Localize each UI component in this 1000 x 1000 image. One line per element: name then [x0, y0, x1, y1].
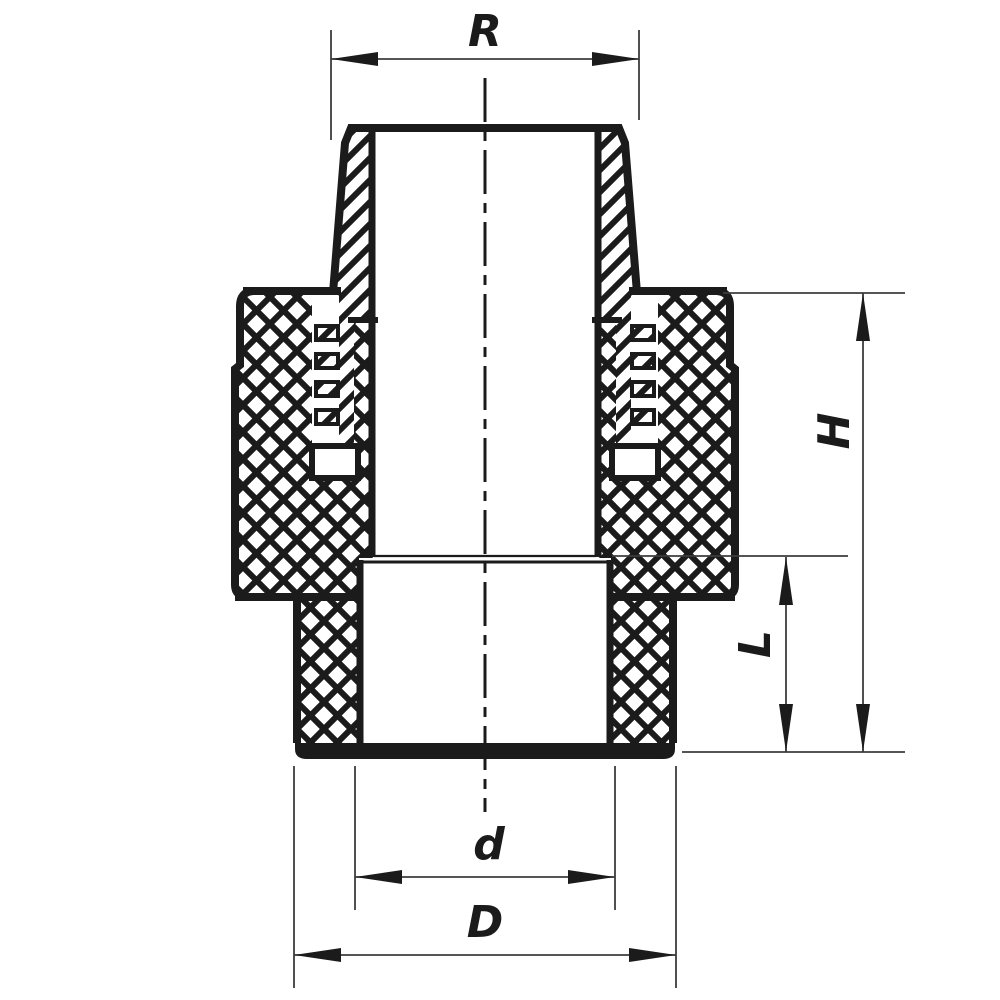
- socket-wall-left: [299, 478, 359, 744]
- arrowhead-bottom: [856, 704, 870, 752]
- union-fitting-section-drawing: R H L d D: [0, 0, 1000, 1000]
- arrowhead-left: [355, 870, 402, 884]
- socket-wall-right: [611, 478, 671, 744]
- arrowhead-top: [856, 293, 870, 341]
- dimension-label-R: R: [468, 6, 502, 57]
- thread-teeth-left: [316, 326, 338, 424]
- dimension-label-L: L: [730, 630, 781, 658]
- arrowhead-top: [779, 557, 793, 605]
- arrowhead-right: [629, 948, 676, 962]
- dimension-label-H: H: [809, 413, 860, 450]
- arrowhead-left: [294, 948, 341, 962]
- dimension-label-d: d: [473, 819, 505, 870]
- thread-teeth-right: [632, 326, 654, 424]
- seal-pocket-right: [612, 446, 658, 478]
- arrowhead-left: [331, 52, 378, 66]
- bottom-face: [295, 743, 675, 759]
- arrowhead-right: [592, 52, 639, 66]
- arrowhead-right: [568, 870, 615, 884]
- seal-pocket-left: [312, 446, 358, 478]
- arrowhead-bottom: [779, 704, 793, 752]
- technical-drawing-page: R H L d D: [0, 0, 1000, 1000]
- dimension-label-D: D: [467, 897, 504, 948]
